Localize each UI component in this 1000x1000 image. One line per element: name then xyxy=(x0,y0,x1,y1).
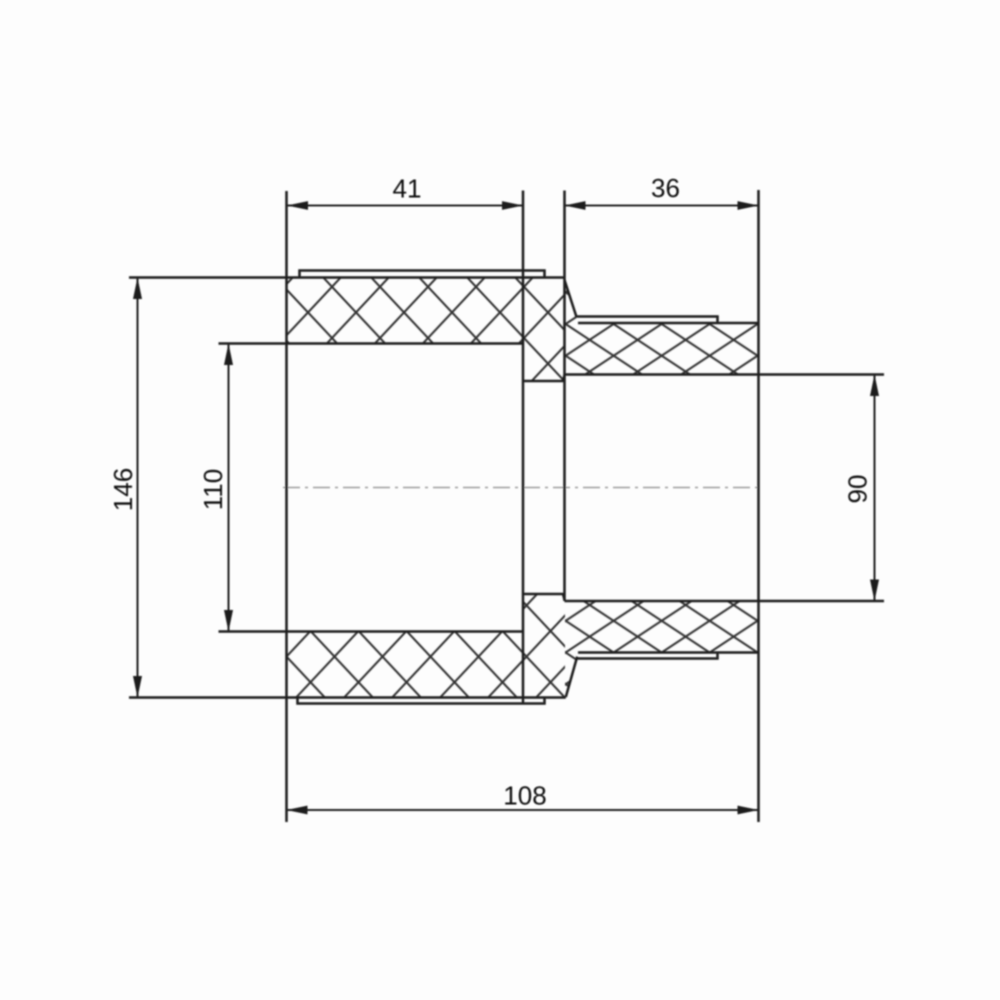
svg-text:41: 41 xyxy=(393,174,422,204)
svg-text:108: 108 xyxy=(503,781,546,811)
svg-text:90: 90 xyxy=(843,475,873,504)
svg-text:110: 110 xyxy=(198,469,228,510)
svg-text:36: 36 xyxy=(651,173,680,203)
svg-text:146: 146 xyxy=(108,468,138,511)
